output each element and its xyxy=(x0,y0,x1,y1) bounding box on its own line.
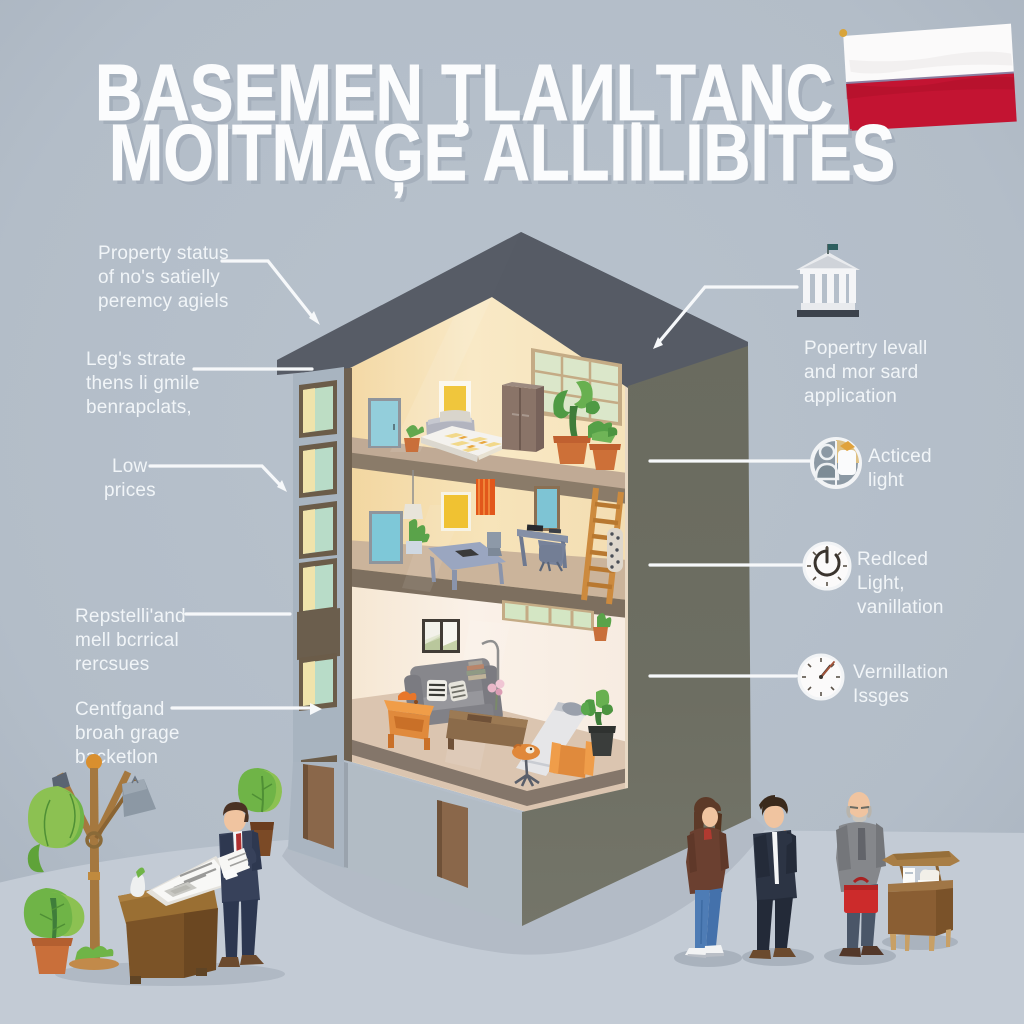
svg-text:Repstelli'and: Repstelli'and xyxy=(75,606,186,627)
svg-text:Vernillation: Vernillation xyxy=(853,662,948,683)
svg-text:Centfgand: Centfgand xyxy=(75,699,164,720)
svg-text:application: application xyxy=(804,386,897,407)
svg-text:prices: prices xyxy=(104,480,156,501)
svg-text:Low: Low xyxy=(112,456,148,477)
svg-text:broah grage: broah grage xyxy=(75,723,180,744)
svg-text:Leg's strate: Leg's strate xyxy=(86,349,186,370)
svg-text:Popertry levall: Popertry levall xyxy=(804,338,927,359)
svg-text:MOITMAĢE ALLIILIBITES: MOITMAĢE ALLIILIBITES xyxy=(109,109,895,198)
svg-text:thens li gmile: thens li gmile xyxy=(86,373,200,394)
svg-text:of no's satielly: of no's satielly xyxy=(98,267,220,288)
svg-text:Issges: Issges xyxy=(853,686,909,707)
svg-text:mell bcrrical: mell bcrrical xyxy=(75,630,179,651)
svg-text:Light,: Light, xyxy=(857,573,905,594)
svg-text:vanillation: vanillation xyxy=(857,597,944,618)
svg-text:light: light xyxy=(868,470,904,491)
svg-text:peremcy agiels: peremcy agiels xyxy=(98,291,229,312)
svg-text:benrapclats,: benrapclats, xyxy=(86,397,192,418)
svg-text:Acticed: Acticed xyxy=(868,446,932,467)
svg-text:Redlced: Redlced xyxy=(857,549,928,570)
svg-text:and mor sard: and mor sard xyxy=(804,362,918,383)
svg-text:Property status: Property status xyxy=(98,243,229,264)
svg-text:rercsues: rercsues xyxy=(75,654,149,675)
